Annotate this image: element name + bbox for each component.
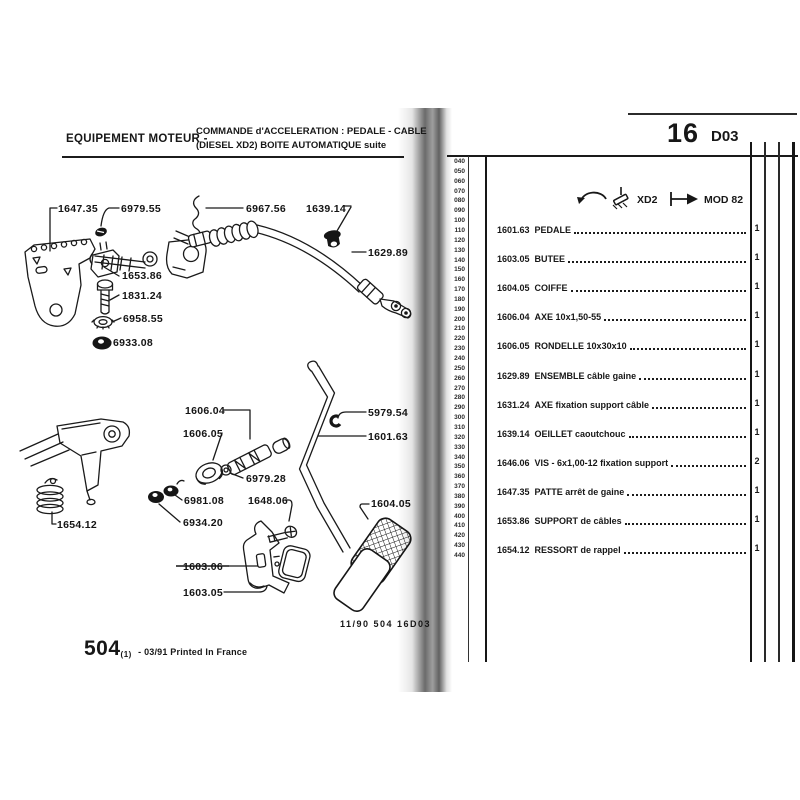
left-page: EQUIPEMENT MOTEUR - COMMANDE d'ACCELERAT…	[0, 110, 440, 690]
part-desc: AXE fixation support câble	[535, 400, 650, 410]
part-desc: PATTE arrêt de gaine	[535, 487, 625, 497]
part-ref: 1654.12	[497, 545, 530, 555]
part-desc: OEILLET caoutchouc	[535, 429, 626, 439]
part-desc: ENSEMBLE câble gaine	[535, 371, 637, 381]
dot-leader	[629, 436, 746, 438]
part-label-1606-04: 1606.04	[185, 405, 225, 417]
hook-wire-drawing	[193, 196, 200, 237]
page-title-line1: COMMANDE d'ACCELERATION : PEDALE - CABLE	[196, 126, 427, 137]
pedal-bracket-drawing	[20, 419, 129, 505]
part-desc: RESSORT de rappel	[535, 545, 621, 555]
part-label-6967-56: 6967.56	[246, 203, 286, 215]
dot-leader	[630, 348, 746, 350]
part-desc: VIS - 6x1,00-12 fixation support	[535, 458, 669, 468]
part-ref: 1631.24	[497, 400, 530, 410]
lock-nuts-drawing	[148, 480, 184, 503]
part-row: 1629.89ENSEMBLE câble gaine	[497, 369, 747, 381]
cable-support-drawing	[91, 226, 119, 277]
dot-leader	[652, 407, 746, 409]
part-ref: 1606.04	[497, 312, 530, 322]
part-label-1606-05: 1606.05	[183, 428, 223, 440]
part-qty: 1	[749, 369, 765, 379]
part-qty: 1	[749, 339, 765, 349]
part-qty: 1	[749, 427, 765, 437]
part-desc: AXE 10x1,50-55	[535, 312, 602, 322]
part-ref: 1653.86	[497, 516, 530, 526]
part-qty: 1	[749, 514, 765, 524]
part-label-1648-06: 1648.06	[248, 495, 288, 507]
cable-assembly-drawing	[174, 220, 411, 318]
part-qty: 1	[749, 310, 765, 320]
edition-number: (1)	[121, 650, 132, 659]
plate-reference: 11/90 504 16D03	[340, 619, 431, 629]
part-label-1647-35: 1647.35	[58, 203, 98, 215]
part-label-6981-08: 6981.08	[184, 495, 224, 507]
part-qty: 1	[749, 252, 765, 262]
part-row: 1604.05COIFFE	[497, 281, 747, 293]
right-page: 16 D03 040050060070080090100110120130140…	[445, 110, 800, 690]
part-label-1604-05: 1604.05	[371, 498, 411, 510]
part-label-5979-54: 5979.54	[368, 407, 408, 419]
part-label-1639-14: 1639.14	[306, 203, 346, 215]
exploded-parts-diagram: 1647.35 6979.55 6967.56 1639.14 1629.89 …	[0, 155, 440, 625]
part-ref: 1629.89	[497, 371, 530, 381]
section-title: EQUIPEMENT MOTEUR -	[66, 133, 208, 145]
part-qty: 1	[749, 398, 765, 408]
part-row: 1601.63PEDALE	[497, 223, 747, 235]
part-row: 1639.14OEILLET caoutchouc	[497, 427, 747, 439]
part-label-1603-06-struck: 1603.06	[183, 561, 223, 573]
dot-leader	[571, 290, 746, 292]
part-qty: 1	[749, 485, 765, 495]
part-row: 1646.06VIS - 6x1,00-12 fixation support	[497, 456, 747, 468]
part-label-1831-24: 1831.24	[122, 290, 162, 302]
part-label-1603-05: 1603.05	[183, 587, 223, 599]
dot-leader	[574, 232, 746, 234]
part-ref: 1601.63	[497, 225, 530, 235]
dot-leader	[639, 378, 746, 380]
c-clip-drawing	[329, 414, 343, 428]
part-row: 1653.86SUPPORT de câbles	[497, 514, 747, 526]
part-ref: 1646.06	[497, 458, 530, 468]
part-ref: 1603.05	[497, 254, 530, 264]
part-label-6979-55: 6979.55	[121, 203, 161, 215]
part-label-6934-20: 6934.20	[183, 517, 223, 529]
dot-leader	[625, 523, 746, 525]
patte-bracket-drawing	[25, 239, 95, 326]
stop-bracket-drawing	[243, 521, 311, 593]
model-number: 504	[84, 637, 121, 660]
dot-leader	[624, 552, 746, 554]
part-desc: PEDALE	[535, 225, 572, 235]
part-ref: 1639.14	[497, 429, 530, 439]
bolt-washer-nut-drawing	[92, 280, 114, 350]
part-label-1601-63: 1601.63	[368, 431, 408, 443]
part-row: 1654.12RESSORT de rappel	[497, 543, 747, 555]
part-label-6979-28: 6979.28	[246, 473, 286, 485]
dot-leader	[604, 319, 746, 321]
part-label-1653-86: 1653.86	[122, 270, 162, 282]
grommet-drawing	[323, 229, 343, 249]
page-title-line2: (DIESEL XD2) BOITE AUTOMATIQUE suite	[196, 140, 386, 151]
part-label-6958-55: 6958.55	[123, 313, 163, 325]
part-ref: 1647.35	[497, 487, 530, 497]
part-qty: 2	[749, 456, 765, 466]
part-qty: 1	[749, 223, 765, 233]
part-label-1629-89: 1629.89	[368, 247, 408, 259]
leader-lines	[50, 206, 369, 592]
part-row: 1606.05RONDELLE 10x30x10	[497, 339, 747, 351]
part-label-1654-12: 1654.12	[57, 519, 97, 531]
dot-leader	[627, 494, 746, 496]
part-desc: RONDELLE 10x30x10	[535, 341, 627, 351]
part-row: 1631.24AXE fixation support câble	[497, 398, 747, 410]
return-spring-drawing	[37, 479, 63, 514]
part-qty: 1	[749, 281, 765, 291]
part-row: 1603.05BUTEE	[497, 252, 747, 264]
part-row: 1647.35PATTE arrêt de gaine	[497, 485, 747, 497]
part-row: 1606.04AXE 10x1,50-55	[497, 310, 747, 322]
model-footer: 504(1) - 03/91 Printed In France	[84, 637, 247, 661]
parts-table: 1601.63PEDALE11603.05BUTEE11604.05COIFFE…	[445, 110, 800, 690]
part-ref: 1604.05	[497, 283, 530, 293]
pedal-arm-drawing	[300, 361, 351, 552]
print-note: - 03/91 Printed In France	[138, 647, 247, 657]
part-qty: 1	[749, 543, 765, 553]
dot-leader	[568, 261, 746, 263]
part-desc: BUTEE	[535, 254, 566, 264]
part-label-6933-08: 6933.08	[113, 337, 153, 349]
part-ref: 1606.05	[497, 341, 530, 351]
part-desc: SUPPORT de câbles	[535, 516, 622, 526]
scanned-catalog-page: EQUIPEMENT MOTEUR - COMMANDE d'ACCELERAT…	[0, 0, 800, 800]
dot-leader	[671, 465, 746, 467]
part-desc: COIFFE	[535, 283, 568, 293]
